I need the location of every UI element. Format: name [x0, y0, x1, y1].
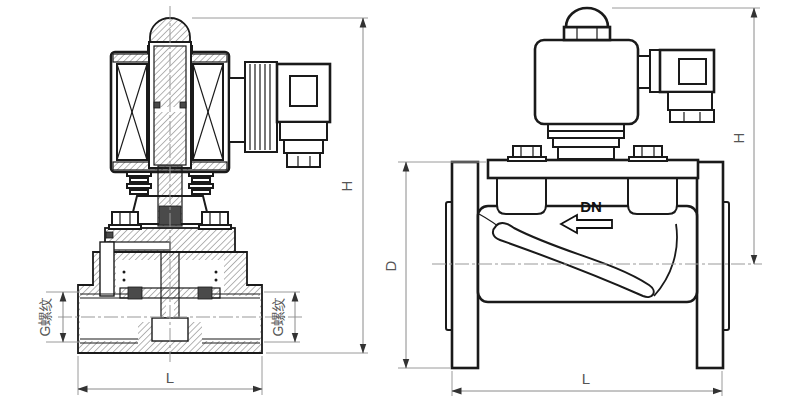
left-view: H L G螺纹 G螺纹 — [37, 6, 368, 395]
dn-label: DN — [580, 198, 602, 215]
connector-window-right — [679, 59, 706, 84]
gasket-stack — [548, 124, 624, 159]
height-dim-label-right: H — [730, 133, 747, 144]
plate-bolt-left — [508, 146, 546, 161]
pilot-tube — [100, 242, 114, 296]
drawing-canvas: H L G螺纹 G螺纹 — [0, 0, 800, 400]
connector-window — [290, 76, 317, 106]
thread-label-left: G螺纹 — [37, 298, 53, 337]
length-dim-label-right: L — [582, 370, 590, 387]
plate-bolt-right — [629, 146, 667, 161]
bonnet-bolt-right — [199, 212, 231, 229]
coil-winding-left — [117, 64, 147, 160]
right-view: DN D H L — [382, 8, 762, 396]
valve-drawing: H L G螺纹 G螺纹 — [0, 0, 800, 400]
flange-left — [446, 162, 478, 368]
cap-nut — [564, 27, 610, 40]
cable-connector — [229, 62, 330, 167]
cable-connector-right — [638, 50, 714, 122]
dimension-L-right: L — [452, 370, 722, 396]
flanged-body — [478, 178, 697, 302]
thread-label-right: G螺纹 — [270, 298, 286, 337]
flange-diameter-label: D — [382, 260, 399, 271]
flange-right — [697, 162, 729, 368]
bonnet-bolt-left — [109, 212, 141, 229]
coil-external — [535, 8, 638, 124]
length-dim-label-left: L — [166, 369, 174, 386]
dome-cap — [566, 8, 608, 27]
dimension-thread-right: G螺纹 — [264, 292, 300, 342]
coil-winding-right — [193, 64, 223, 160]
height-dim-label-left: H — [338, 181, 355, 192]
